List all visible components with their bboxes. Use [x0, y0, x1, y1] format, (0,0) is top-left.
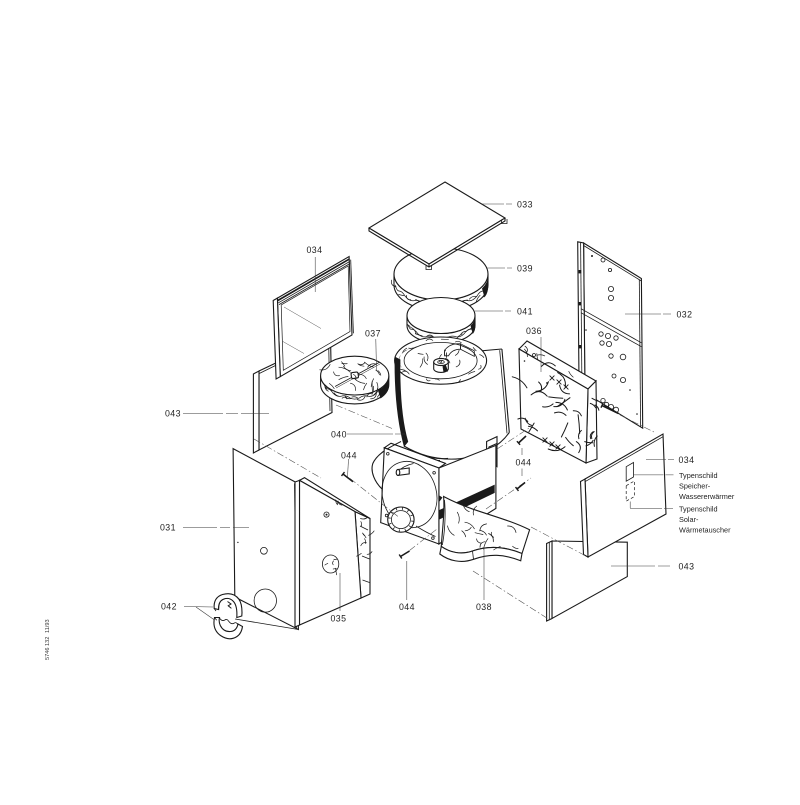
svg-text:036: 036: [526, 326, 542, 336]
svg-text:034: 034: [307, 245, 323, 255]
svg-text:Typenschild: Typenschild: [679, 471, 718, 480]
svg-text:044: 044: [399, 602, 415, 612]
svg-text:Solar-: Solar-: [679, 515, 699, 524]
svg-text:034: 034: [679, 455, 695, 465]
svg-text:043: 043: [679, 562, 695, 572]
svg-text:038: 038: [476, 602, 492, 612]
svg-text:033: 033: [517, 200, 533, 210]
svg-text:Wassererwärmer: Wassererwärmer: [679, 492, 735, 501]
svg-text:031: 031: [160, 523, 176, 533]
svg-text:11/93: 11/93: [45, 619, 51, 633]
svg-text:Speicher-: Speicher-: [679, 482, 711, 491]
svg-text:040: 040: [331, 430, 347, 440]
svg-text:032: 032: [677, 310, 693, 320]
svg-text:041: 041: [517, 307, 533, 317]
svg-text:042: 042: [161, 602, 177, 612]
svg-text:044: 044: [341, 451, 357, 461]
svg-text:039: 039: [517, 264, 533, 274]
svg-text:044: 044: [516, 458, 532, 468]
svg-text:Wärmetauscher: Wärmetauscher: [679, 526, 731, 535]
svg-text:5746 132: 5746 132: [45, 637, 51, 660]
svg-text:Typenschild: Typenschild: [679, 505, 718, 514]
svg-text:035: 035: [331, 614, 347, 624]
svg-text:037: 037: [365, 329, 381, 339]
svg-text:043: 043: [165, 409, 181, 419]
